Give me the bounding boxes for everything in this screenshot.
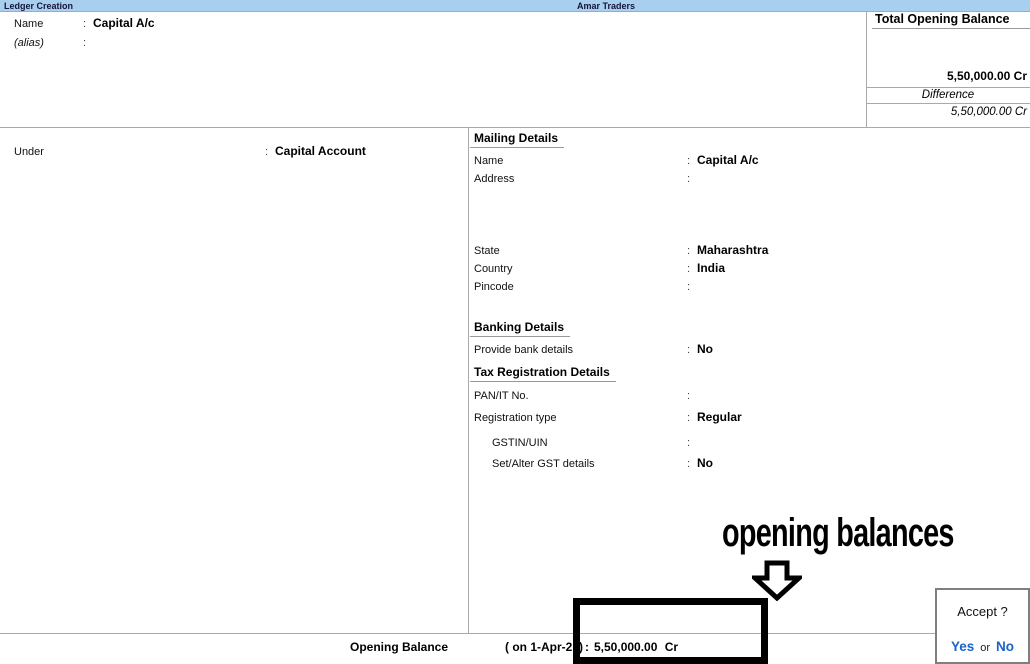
mailing-name-colon: : xyxy=(687,155,690,168)
alias-colon: : xyxy=(83,37,86,50)
down-arrow-icon xyxy=(752,560,802,601)
address-label: Address xyxy=(474,173,514,186)
accept-no-button[interactable]: No xyxy=(996,639,1014,654)
difference-bottom-line xyxy=(866,103,1030,104)
registration-type-field[interactable]: Regular xyxy=(697,411,742,424)
annotation-highlight-box xyxy=(573,598,768,664)
registration-type-label: Registration type xyxy=(474,412,557,425)
accept-dialog: Accept ? Yes or No xyxy=(935,588,1030,664)
annotation-opening-balances-text: opening balances xyxy=(722,512,954,554)
provide-bank-details-label: Provide bank details xyxy=(474,344,573,357)
country-label: Country xyxy=(474,263,513,276)
country-colon: : xyxy=(687,263,690,276)
pan-it-colon: : xyxy=(687,390,690,403)
difference-value: 5,50,000.00 Cr xyxy=(951,106,1027,118)
mailing-name-label: Name xyxy=(474,155,503,168)
column-divider xyxy=(468,127,469,633)
accept-question-label: Accept ? xyxy=(937,604,1028,619)
title-bar: Ledger Creation Amar Traders xyxy=(0,0,1030,12)
pincode-label: Pincode xyxy=(474,281,514,294)
name-field[interactable]: Capital A/c xyxy=(93,17,155,30)
set-alter-gst-field[interactable]: No xyxy=(697,457,713,470)
gstin-uin-label: GSTIN/UIN xyxy=(492,437,548,450)
difference-top-line xyxy=(866,87,1030,88)
alias-label: (alias) xyxy=(14,37,44,50)
registration-type-colon: : xyxy=(687,412,690,425)
difference-label: Difference xyxy=(866,89,1030,101)
country-field[interactable]: India xyxy=(697,262,725,275)
under-colon: : xyxy=(265,146,268,159)
mailing-name-field[interactable]: Capital A/c xyxy=(697,154,759,167)
provide-bank-details-field[interactable]: No xyxy=(697,343,713,356)
company-name: Amar Traders xyxy=(577,1,635,11)
accept-yes-button[interactable]: Yes xyxy=(951,639,974,654)
gstin-uin-colon: : xyxy=(687,437,690,450)
total-opening-balance-heading: Total Opening Balance xyxy=(872,12,1030,29)
state-field[interactable]: Maharashtra xyxy=(697,244,768,257)
set-alter-gst-colon: : xyxy=(687,458,690,471)
accept-or-label: or xyxy=(980,642,990,654)
name-label: Name xyxy=(14,18,43,31)
header-separator-line xyxy=(0,127,1030,128)
tax-registration-details-heading: Tax Registration Details xyxy=(470,366,616,382)
address-colon: : xyxy=(687,173,690,186)
opening-balance-date: ( on 1-Apr-21) xyxy=(505,640,583,654)
bottom-bar-separator-line xyxy=(0,633,936,634)
provide-bank-details-colon: : xyxy=(687,344,690,357)
state-label: State xyxy=(474,245,500,258)
under-field[interactable]: Capital Account xyxy=(275,145,366,158)
mailing-details-heading: Mailing Details xyxy=(470,132,564,148)
totals-panel-divider xyxy=(866,11,867,127)
banking-details-heading: Banking Details xyxy=(470,321,570,337)
screen-title: Ledger Creation xyxy=(4,1,73,11)
under-label: Under xyxy=(14,146,44,159)
name-colon: : xyxy=(83,18,86,31)
set-alter-gst-label: Set/Alter GST details xyxy=(492,458,595,471)
state-colon: : xyxy=(687,245,690,258)
pincode-colon: : xyxy=(687,281,690,294)
accept-options: Yes or No xyxy=(937,639,1028,654)
ledger-creation-window: { "colors": { "titlebar_bg": "#a9cfee", … xyxy=(0,0,1030,664)
total-opening-balance-value: 5,50,000.00 Cr xyxy=(947,69,1027,83)
pan-it-label: PAN/IT No. xyxy=(474,390,529,403)
opening-balance-label: Opening Balance xyxy=(350,640,448,654)
